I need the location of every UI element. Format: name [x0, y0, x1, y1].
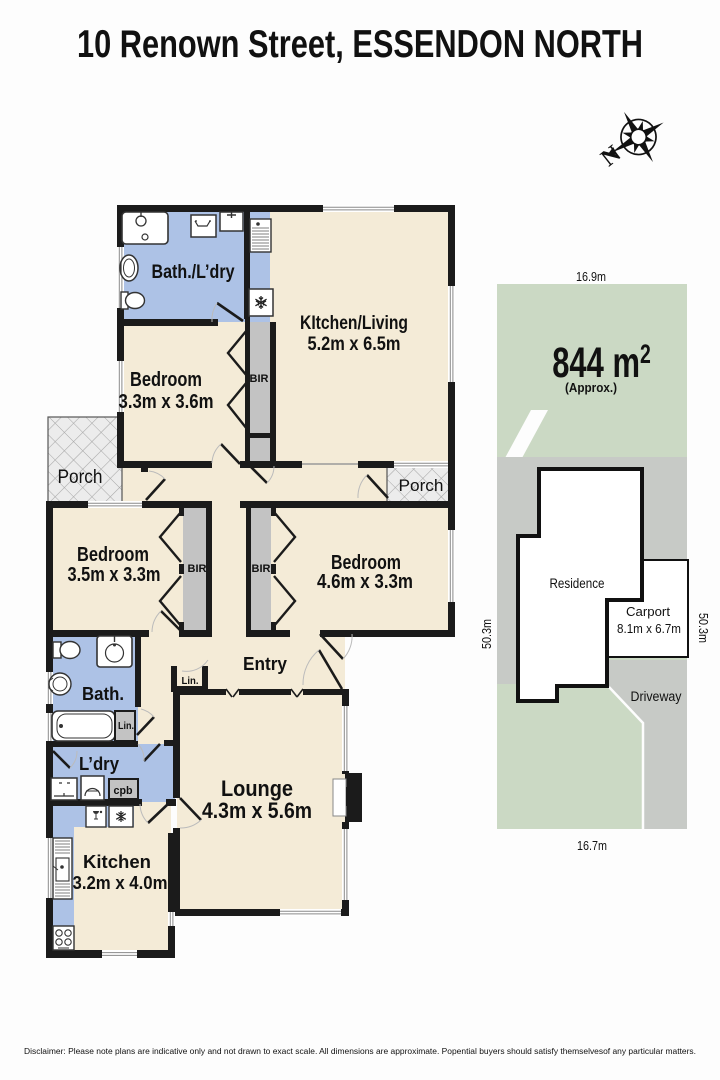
- svg-text:5.2m x 6.5m: 5.2m x 6.5m: [308, 333, 401, 355]
- svg-text:Carport: Carport: [626, 604, 670, 619]
- svg-text:Porch: Porch: [58, 467, 103, 488]
- svg-text:(Approx.): (Approx.): [565, 380, 617, 395]
- svg-text:cpb: cpb: [114, 785, 133, 797]
- svg-text:KItchen/Living: KItchen/Living: [300, 312, 408, 334]
- svg-text:16.7m: 16.7m: [577, 838, 607, 853]
- svg-text:BIR: BIR: [252, 563, 271, 575]
- svg-text:16.9m: 16.9m: [576, 269, 606, 284]
- svg-text:3.2m x 4.0m: 3.2m x 4.0m: [73, 873, 168, 893]
- svg-text:Lin.: Lin.: [118, 721, 134, 732]
- svg-text:Lin.: Lin.: [182, 675, 199, 687]
- svg-text:3.5m x 3.3m: 3.5m x 3.3m: [68, 564, 161, 586]
- svg-text:Residence: Residence: [550, 576, 605, 591]
- svg-text:50.3m: 50.3m: [696, 613, 711, 643]
- svg-text:10 Renown Street, ESSENDON NOR: 10 Renown Street, ESSENDON NORTH: [77, 23, 643, 66]
- svg-text:Kitchen: Kitchen: [83, 852, 151, 872]
- svg-text:Bedroom: Bedroom: [130, 369, 202, 391]
- svg-text:Disclaimer: Please note plans: Disclaimer: Please note plans are indica…: [24, 1046, 696, 1056]
- svg-text:Entry: Entry: [243, 654, 287, 674]
- svg-text:8.1m x 6.7m: 8.1m x 6.7m: [617, 621, 681, 636]
- svg-text:50.3m: 50.3m: [479, 619, 494, 649]
- svg-text:4.6m x 3.3m: 4.6m x 3.3m: [317, 571, 413, 593]
- svg-text:Bath./L’dry: Bath./L’dry: [152, 262, 235, 283]
- svg-text:Driveway: Driveway: [631, 689, 682, 704]
- svg-text:3.3m x 3.6m: 3.3m x 3.6m: [119, 391, 214, 413]
- svg-text:844 m2: 844 m2: [552, 338, 651, 386]
- svg-text:BIR: BIR: [188, 563, 207, 575]
- svg-text:L’dry: L’dry: [79, 754, 119, 774]
- svg-text:4.3m x 5.6m: 4.3m x 5.6m: [202, 798, 312, 823]
- svg-text:BIR: BIR: [250, 373, 269, 385]
- svg-text:Porch: Porch: [399, 477, 444, 495]
- svg-text:Bath.: Bath.: [82, 684, 124, 704]
- svg-text:Bedroom: Bedroom: [77, 544, 149, 566]
